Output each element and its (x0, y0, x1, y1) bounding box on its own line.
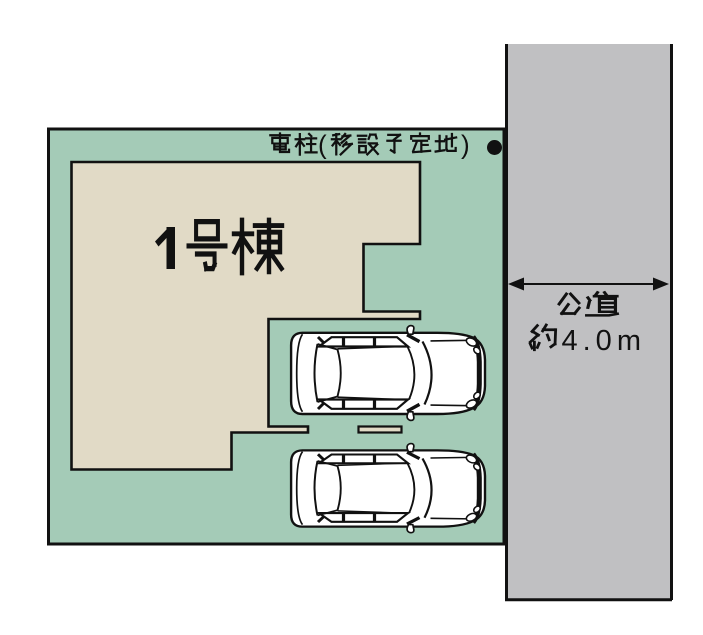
svg-text:4.0m: 4.0m (562, 325, 646, 357)
svg-text:(: ( (318, 130, 327, 160)
svg-text:): ) (461, 130, 470, 160)
